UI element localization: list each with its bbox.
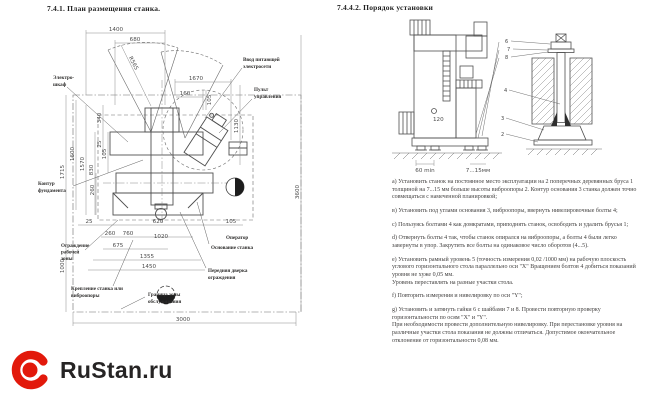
dim-r565: R565 [127,56,139,72]
procedure-step-b: в) Установить под углами основания 3, ви… [392,208,644,216]
label-electro-cabinet: Электро- [53,75,74,81]
callout-7: 7 [507,47,510,53]
callout-8: 8 [505,55,508,61]
callout-6: 6 [505,39,508,45]
label-electro-cabinet: шкаф [53,81,67,88]
anchor-bolt-detail [532,34,592,145]
procedure-step-f: f) Повторить измерения и нивелировку по … [392,293,644,301]
callout-3: 3 [501,116,504,122]
label-foundation-contour: фундамента [38,187,66,194]
installation-drawing: 60 min 7...15мм 120 6 7 8 4 3 2 [386,16,648,174]
ground-hatching-machine [392,153,502,159]
dim-1400: 1400 [109,27,124,33]
label-control-panel: Пульт [254,87,269,93]
ground-hatching-detail [526,149,602,155]
dimension-lines [66,30,301,326]
label-operator: Оператор [226,235,248,241]
block-hatching [532,58,592,124]
dim-260-bottom: 260 [105,231,116,237]
dim-1450: 1450 [142,264,157,270]
label-front-guard-door: Передняя дверка [208,268,248,274]
dim-60min: 60 min [415,168,435,174]
dim-260-left: 260 [90,184,96,195]
dim-3600: 3600 [295,184,301,199]
foundation-contour [98,115,253,220]
label-front-guard-door: ограждения [208,275,236,281]
dim-105-top: 105 [207,94,213,105]
dim-105-left: 105 [102,148,108,159]
label-foundation-contour: Контур [38,181,55,187]
label-work-zone-guard: рабочей [61,249,79,256]
label-service-zone-border: обслуживания [148,298,181,305]
section-title-placement-plan: 7.4.1. План размещения станка. [47,4,160,13]
dim-680: 680 [130,37,141,43]
dim-105-bottom: 105 [226,219,237,225]
label-power-input: электросети [243,64,271,70]
control-panel-plan [184,110,232,166]
procedure-step-d: d) Отвернуть болты 4 так, чтобы станок о… [392,235,644,250]
label-control-panel: управления [254,94,282,100]
service-zone-boundary [73,95,301,312]
procedure-step-g: g) Установить и затянуть гайки 6 с шайба… [392,307,644,345]
dim-340: 340 [97,112,103,123]
dim-25-left: 25 [97,140,103,148]
dim-1355: 1355 [140,254,155,260]
label-service-zone-border: Граница зоны [148,292,180,298]
dim-1600: 1600 [70,146,76,161]
callout-4: 4 [504,88,507,94]
dim-620: 620 [153,219,164,225]
section-title-install-order: 7.4.4.2. Порядок установки [337,3,433,12]
dim-1570: 1570 [80,156,86,171]
dim-120: 120 [433,117,444,123]
label-machine-mount: виброопоры [71,292,99,299]
label-machine-base: Основание станка [211,245,253,251]
dim-1130: 1130 [234,118,240,133]
machine-side-view [399,20,488,150]
label-work-zone-guard: Ограждение [61,243,90,249]
dim-830: 830 [89,164,95,175]
operator-symbol-right [226,178,244,196]
label-work-zone-guard: зоны [61,256,72,262]
dim-7-15mm: 7...15мм [466,168,490,174]
procedure-step-a: а) Установить станок на постоянное место… [392,179,644,202]
procedure-step-e: е) Установить рамный уровень 5 (точность… [392,257,644,288]
machine-plan-outline [110,108,247,220]
installation-procedure-text: а) Установить станок на постоянное место… [392,179,644,351]
rustan-logo-text: RuStan.ru [60,357,173,384]
callout-2: 2 [501,132,504,138]
rustan-logo-icon [9,348,53,392]
dim-25-bottom: 25 [85,219,93,225]
label-machine-mount: Крепление станка или [71,286,123,292]
label-power-input: Ввод питающей [243,56,280,63]
dim-1715: 1715 [60,164,66,179]
rustan-logo: RuStan.ru [9,348,173,392]
dim-760: 760 [123,231,134,237]
dim-3000: 3000 [176,317,191,323]
procedure-step-c: с) Пользуясь болтами 4 как домкратами, п… [392,222,644,230]
dim-675: 675 [113,243,124,249]
dim-160: 160 [180,91,191,97]
placement-plan-drawing: 1400 680 R565 1670 160 105 1715 1600 157… [33,20,325,345]
dim-1670: 1670 [189,76,204,82]
dim-1020: 1020 [154,234,169,240]
